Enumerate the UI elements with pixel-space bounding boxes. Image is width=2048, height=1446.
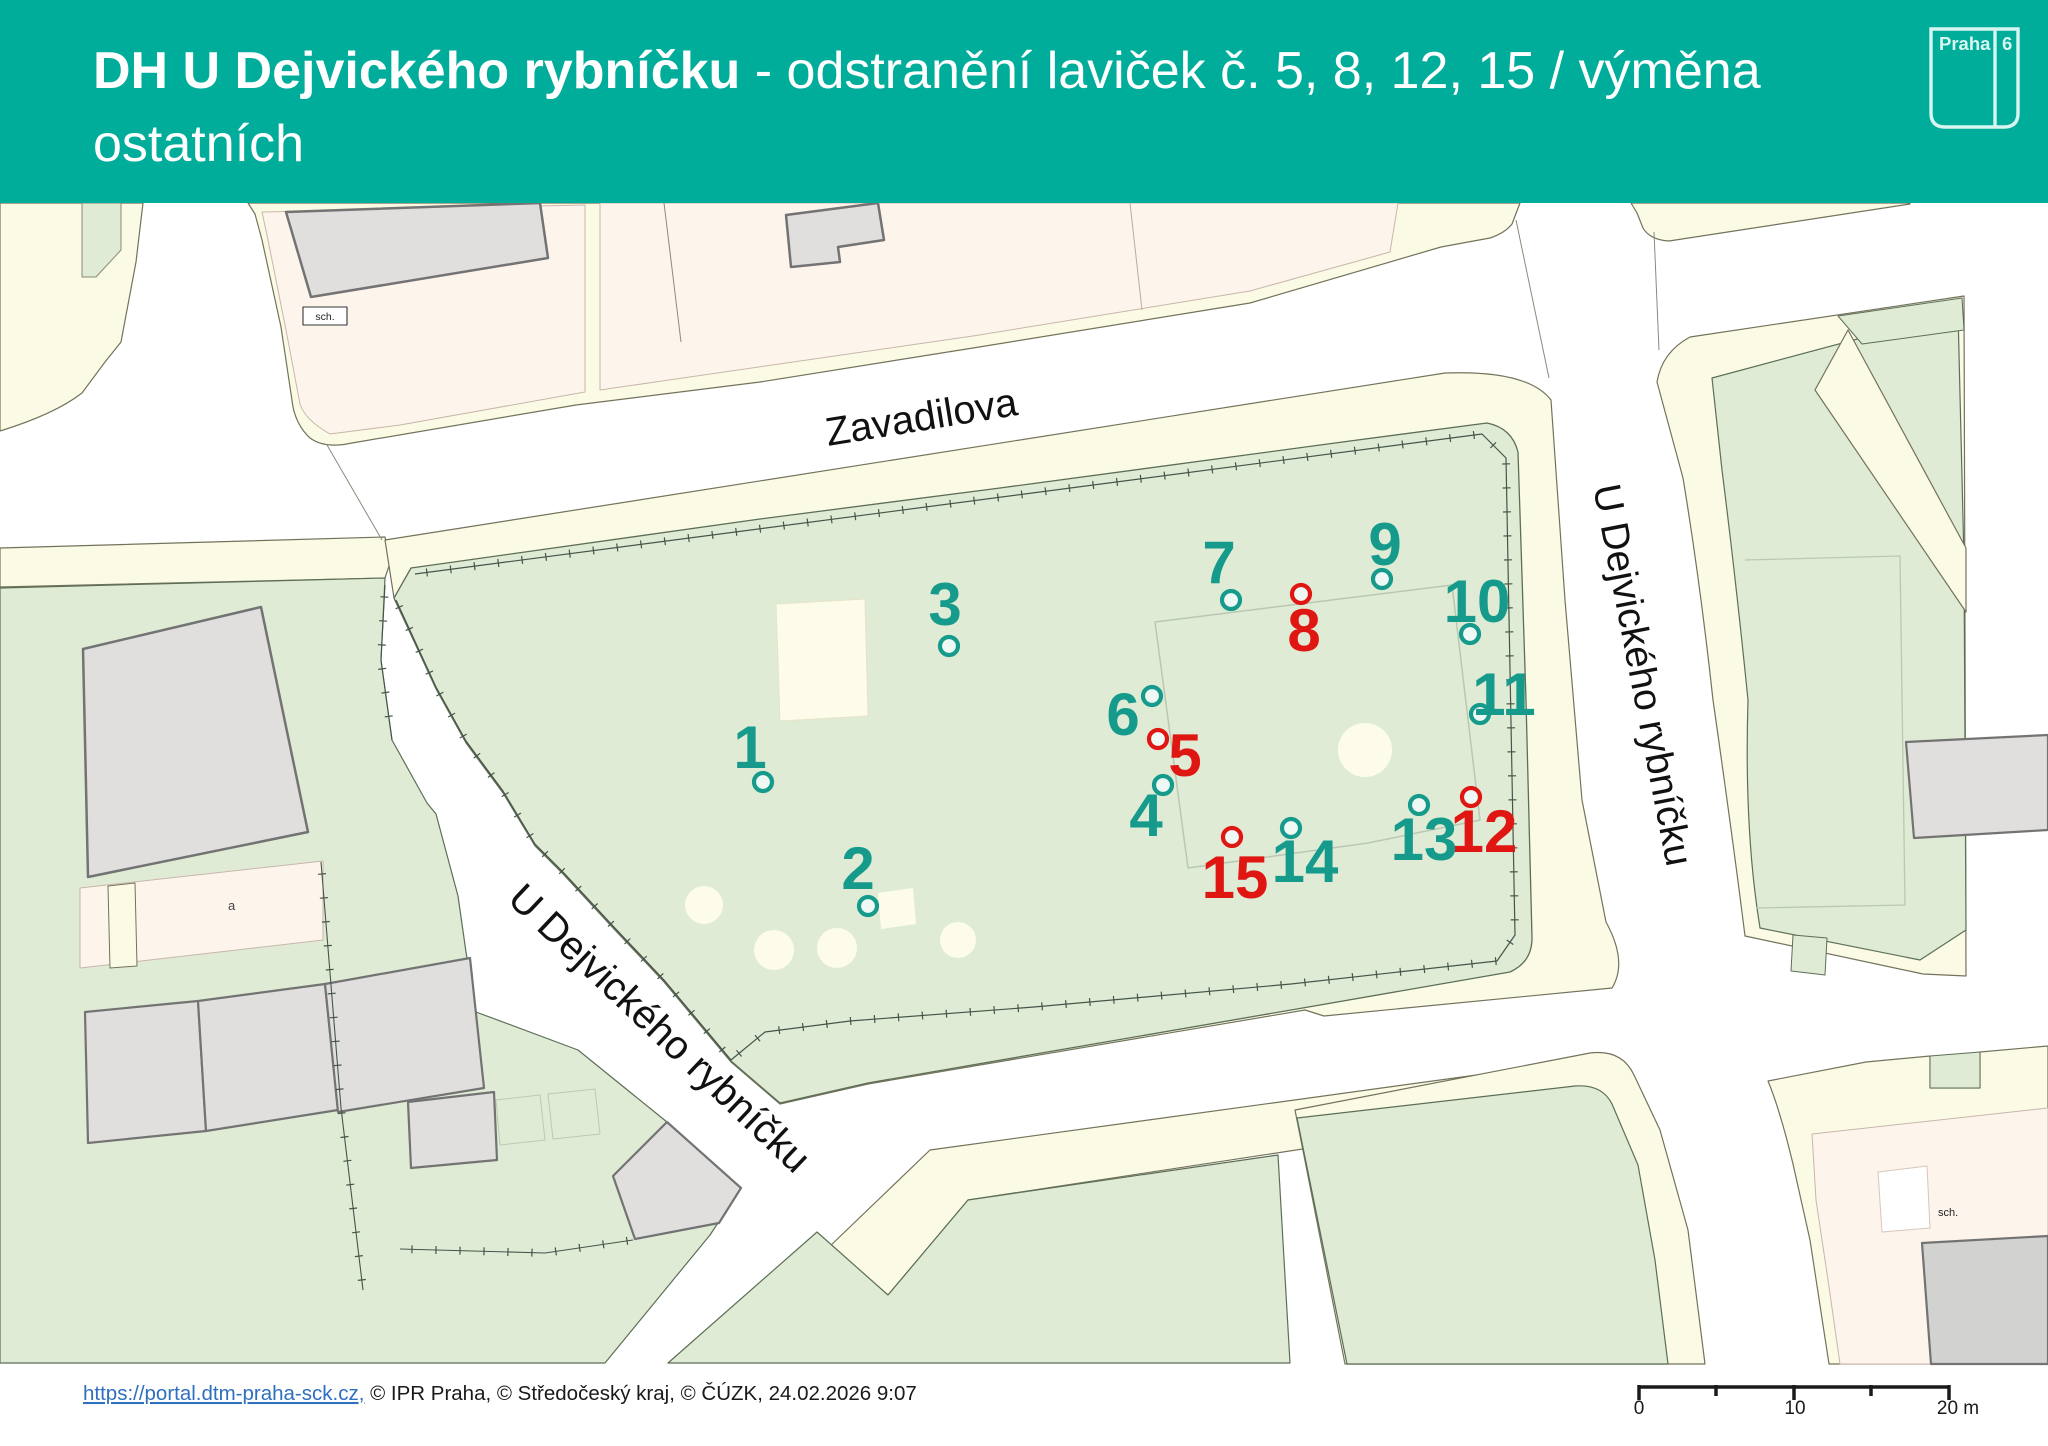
svg-text:1: 1 [733,714,766,781]
svg-text:12: 12 [1451,798,1518,865]
svg-text:8: 8 [1287,597,1320,664]
svg-text:sch.: sch. [315,311,334,323]
svg-text:6: 6 [1106,681,1139,748]
svg-text:https://portal.dtm-praha-sck.c: https://portal.dtm-praha-sck.cz, © IPR P… [83,1382,917,1405]
svg-text:ostatních: ostatních [93,115,304,173]
svg-text:13: 13 [1391,806,1458,873]
svg-text:15: 15 [1202,844,1269,911]
svg-text:7: 7 [1202,529,1235,596]
svg-text:DH U Dejvického rybníčku - ods: DH U Dejvického rybníčku - odstranění la… [93,42,1761,100]
svg-text:10: 10 [1784,1398,1805,1419]
svg-text:11: 11 [1472,661,1535,728]
svg-text:9: 9 [1368,511,1401,578]
svg-text:a: a [228,898,236,913]
svg-text:3: 3 [928,571,961,638]
svg-text:20 m: 20 m [1937,1398,1979,1419]
svg-text:sch.: sch. [1938,1207,1958,1219]
svg-text:0: 0 [1634,1398,1645,1419]
svg-text:4: 4 [1129,782,1163,849]
svg-text:Praha: Praha [1939,33,1991,54]
svg-text:10: 10 [1444,568,1511,635]
svg-text:6: 6 [2002,33,2012,54]
svg-text:5: 5 [1168,722,1201,789]
svg-text:2: 2 [841,835,874,902]
svg-text:14: 14 [1272,828,1339,895]
